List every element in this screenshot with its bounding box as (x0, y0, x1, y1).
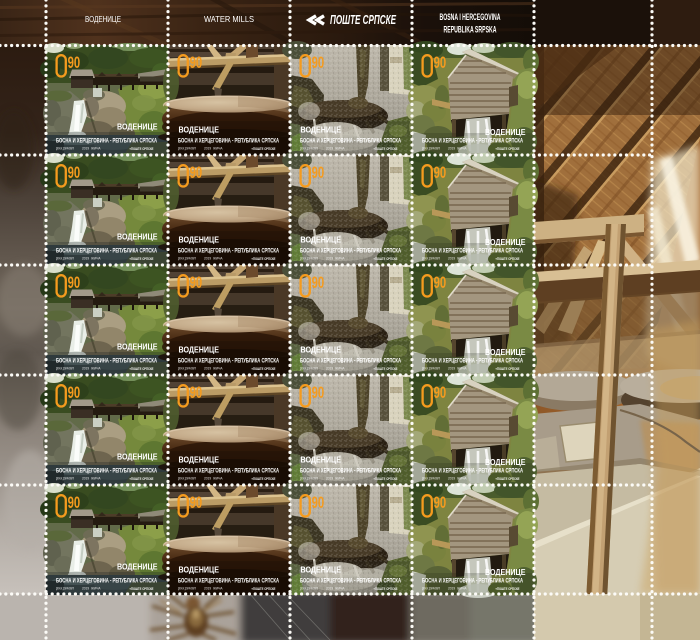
svg-text:WATER MILLS: WATER MILLS (204, 14, 254, 24)
svg-text:ПОШТЕ СРПСКЕ: ПОШТЕ СРПСКЕ (330, 13, 396, 27)
svg-text:REPUBLIKA SRPSKA: REPUBLIKA SRPSKA (444, 24, 497, 34)
svg-text:ВОДЕНИЦЕ: ВОДЕНИЦЕ (85, 14, 121, 24)
svg-text:BOSNA I HERCEGOVINA: BOSNA I HERCEGOVINA (440, 12, 501, 22)
